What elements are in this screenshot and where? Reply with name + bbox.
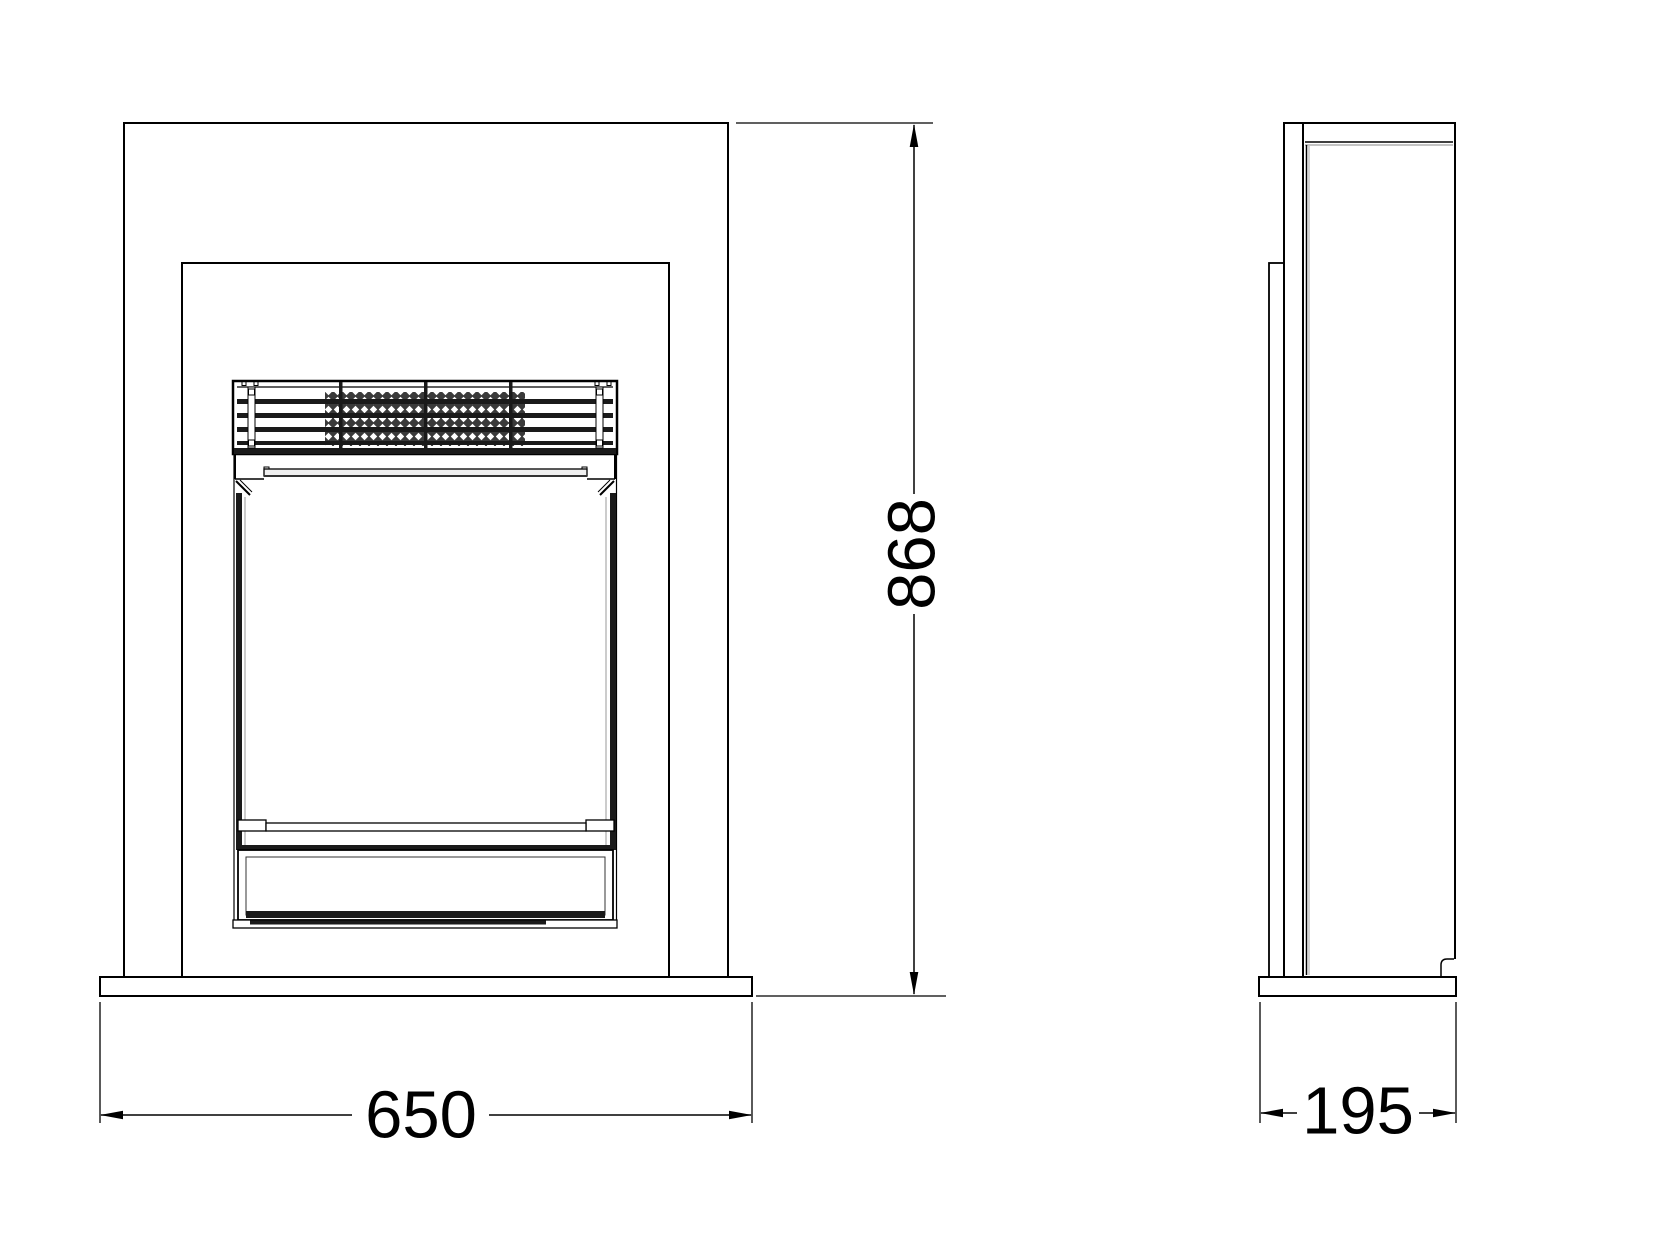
- grille-bottom-rail: [234, 448, 616, 454]
- grille-divider: [339, 382, 343, 448]
- grille-end-bracket: [248, 387, 255, 448]
- sill-end-block: [238, 820, 266, 831]
- drawer-panel: [233, 850, 617, 928]
- dimension-depth: 195: [1260, 1002, 1456, 1149]
- side-leg-profile: [1284, 123, 1303, 977]
- arrowhead-right: [729, 1111, 752, 1120]
- grille-divider: [509, 382, 513, 448]
- front-view: [100, 123, 752, 996]
- side-insert-strip: [1269, 263, 1284, 977]
- side-base-plinth: [1259, 977, 1456, 996]
- base-plinth: [100, 977, 752, 996]
- technical-drawing-canvas: 868 650 195: [0, 0, 1676, 1247]
- arrowhead-left: [1260, 1109, 1283, 1118]
- side-body-profile: [1303, 123, 1455, 977]
- canopy-bar: [264, 469, 587, 476]
- fireplace-dimension-drawing: 868 650 195: [0, 0, 1676, 1247]
- firebox-left-wall: [236, 493, 242, 850]
- dimension-depth-value: 195: [1302, 1074, 1414, 1149]
- dimension-height: 868: [736, 123, 950, 996]
- drawer-outline: [238, 850, 613, 920]
- drawer-bottom-band: [246, 911, 605, 918]
- firebox-right-wall: [610, 493, 616, 850]
- dimension-height-value: 868: [875, 498, 950, 610]
- arrowhead-down: [910, 972, 919, 995]
- grille-end-bracket: [596, 387, 603, 448]
- side-notch-fill: [1441, 959, 1456, 976]
- arrowhead-right: [1433, 1109, 1456, 1118]
- side-view: [1259, 123, 1456, 996]
- sill-bar: [266, 823, 586, 831]
- grille-divider: [424, 382, 428, 448]
- arrowhead-left: [100, 1111, 123, 1120]
- insert-plinth-shadow: [250, 921, 546, 925]
- dimension-width: 650: [100, 1002, 752, 1153]
- dimension-width-value: 650: [365, 1078, 477, 1153]
- arrowhead-up: [910, 124, 919, 147]
- sill-end-block: [586, 820, 614, 831]
